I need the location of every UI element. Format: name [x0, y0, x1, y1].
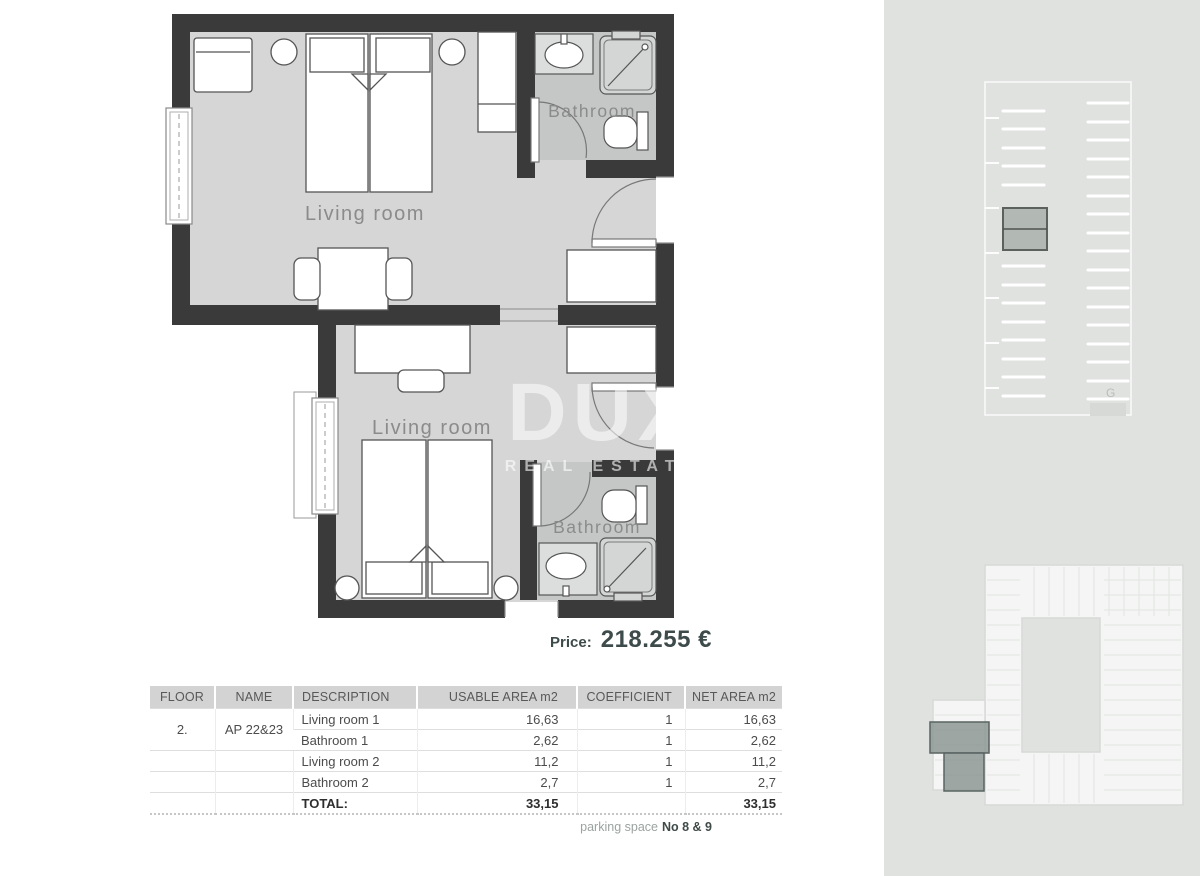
table-row: 2. AP 22&23 Living room 1 16,63 1 16,63: [150, 709, 782, 730]
cell-total-label: TOTAL:: [293, 793, 417, 815]
cell-net: 16,63: [685, 709, 782, 730]
col-header-net-area: NET AREA m2: [685, 686, 782, 709]
bathroom-1-label: Bathroom: [548, 101, 636, 121]
window-lower-left: [294, 392, 338, 518]
sidebar: G: [884, 0, 1200, 876]
table-row: Bathroom 2 2,7 1 2,7: [150, 772, 782, 793]
cell-usable: 11,2: [417, 751, 577, 772]
cell-description: Bathroom 2: [293, 772, 417, 793]
living-room-1-label: Living room: [305, 203, 425, 225]
cell-name: AP 22&23: [215, 709, 293, 751]
cell-usable: 2,7: [417, 772, 577, 793]
price-line: Price:218.255 €: [480, 626, 712, 654]
cell-description: Bathroom 1: [293, 730, 417, 751]
cell-usable: 16,63: [417, 709, 577, 730]
cell-coefficient: 1: [577, 730, 685, 751]
cell-net: 2,62: [685, 730, 782, 751]
cell-name: [215, 772, 293, 793]
cell-name: [215, 793, 293, 815]
cell-total-usable: 33,15: [417, 793, 577, 815]
cell-description: Living room 1: [293, 709, 417, 730]
cell-floor: [150, 772, 215, 793]
cell-floor: [150, 793, 215, 815]
page-canvas: Living room Bathroom Living room Bathroo…: [0, 0, 1200, 876]
parking-note-label: parking space: [580, 820, 658, 834]
table-row: Living room 2 11,2 1 11,2: [150, 751, 782, 772]
building-plan-thumbnail: [884, 545, 1200, 835]
price-label: Price:: [550, 634, 592, 651]
cell-name: [215, 751, 293, 772]
col-header-floor: FLOOR: [150, 686, 215, 709]
parking-stalls-right: [1088, 103, 1128, 399]
cell-description: Living room 2: [293, 751, 417, 772]
table-total-row: TOTAL: 33,15 33,15: [150, 793, 782, 815]
cell-net: 11,2: [685, 751, 782, 772]
cell-coefficient: 1: [577, 751, 685, 772]
cell-net: 2,7: [685, 772, 782, 793]
cell-floor: 2.: [150, 709, 215, 751]
col-header-coefficient: COEFFICIENT: [577, 686, 685, 709]
parking-note-value: No 8 & 9: [662, 820, 712, 834]
cell-coefficient: 1: [577, 772, 685, 793]
parking-note: parking spaceNo 8 & 9: [480, 820, 712, 834]
parking-plan-thumbnail: G: [884, 0, 1200, 440]
col-header-name: NAME: [215, 686, 293, 709]
col-header-usable-area: USABLE AREA m2: [417, 686, 577, 709]
col-header-description: DESCRIPTION: [293, 686, 417, 709]
cell-usable: 2,62: [417, 730, 577, 751]
parking-group-ticks: [985, 118, 999, 388]
cell-floor: [150, 751, 215, 772]
cell-total-net: 33,15: [685, 793, 782, 815]
cell-coefficient: 1: [577, 709, 685, 730]
area-table: FLOOR NAME DESCRIPTION USABLE AREA m2 CO…: [150, 686, 782, 815]
cell-coefficient: [577, 793, 685, 815]
parking-stalls-left: [1003, 111, 1044, 396]
window-upper-left: [166, 108, 192, 224]
garage-ramp: [1090, 403, 1126, 416]
bathroom-2-label: Bathroom: [553, 517, 641, 537]
price-value: 218.255 €: [601, 626, 712, 653]
living-room-2-label: Living room: [372, 417, 492, 439]
table-header-row: FLOOR NAME DESCRIPTION USABLE AREA m2 CO…: [150, 686, 782, 709]
garage-label: G: [1106, 386, 1115, 400]
floorplan-drawing: Living room Bathroom Living room Bathroo…: [0, 0, 760, 660]
parking-highlight-spaces: [1003, 208, 1047, 250]
